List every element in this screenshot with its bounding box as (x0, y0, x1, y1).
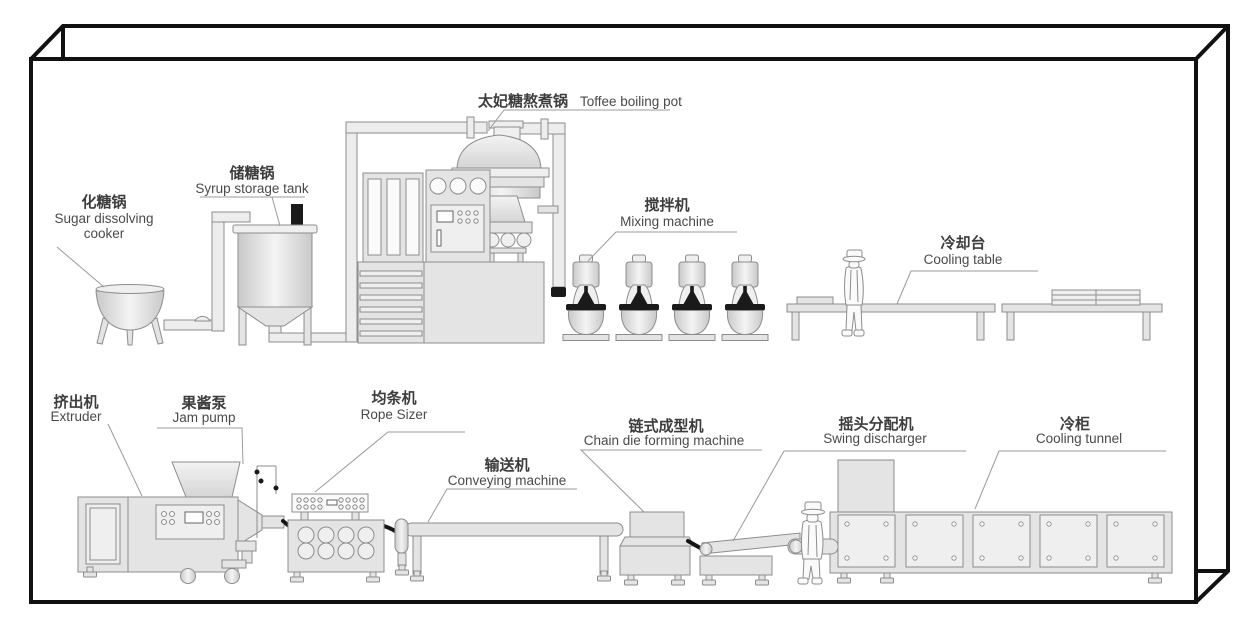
leader-cooling-table (897, 271, 1038, 304)
machine-foot (756, 575, 769, 585)
label-swing-discharger: 摇头分配机 Swing discharger (823, 415, 927, 446)
label-en: Conveying machine (448, 473, 567, 488)
label-conveyor: 输送机 Conveying machine (448, 456, 567, 488)
cooling-table-1 (787, 297, 995, 340)
label-en: Extruder (50, 409, 102, 424)
label-en: Rope Sizer (361, 407, 428, 422)
machine-foot (672, 575, 685, 585)
label-en: Mixing machine (620, 214, 714, 229)
label-zh: 化糖锅 (81, 193, 126, 211)
sugar-dissolving-cooker (96, 285, 164, 346)
mixing-machine-unit (722, 255, 768, 341)
label-jam-pump: 果酱泵 Jam pump (172, 394, 235, 425)
mixing-machine-unit (669, 255, 715, 341)
label-zh: 输送机 (484, 456, 529, 474)
tunnel-panel (1040, 515, 1097, 567)
label-toffee-pot: 太妃糖熬煮锅 Toffee boiling pot (478, 92, 682, 110)
tunnel-panel (838, 515, 895, 567)
label-en: Jam pump (172, 410, 235, 425)
label-en: cooker (84, 226, 125, 241)
label-chain-die: 链式成型机 Chain die forming machine (584, 417, 745, 448)
mixing-machine-unit (616, 255, 662, 341)
worker-figure-2 (798, 502, 825, 584)
rope-sizer (283, 494, 401, 582)
label-cooling-tunnel: 冷柜 Cooling tunnel (1036, 415, 1122, 446)
machine-foot (291, 572, 304, 582)
machine-foot (625, 575, 638, 585)
syrup-storage-tank (233, 204, 317, 345)
conveying-machine (395, 519, 623, 581)
tunnel-panel (906, 515, 963, 567)
label-en: Toffee boiling pot (580, 94, 682, 109)
label-en: Sugar dissolving (54, 211, 153, 226)
machine-foot (411, 571, 424, 581)
swing-discharger (700, 533, 800, 585)
machine-foot (703, 575, 716, 585)
machine-foot (1149, 573, 1162, 583)
label-en: Chain die forming machine (584, 433, 745, 448)
label-mixer: 搅拌机 Mixing machine (620, 196, 714, 229)
label-en: Syrup storage tank (195, 181, 309, 196)
tunnel-panel (1107, 515, 1164, 567)
label-syrup-tank: 储糖锅 Syrup storage tank (195, 164, 309, 196)
machine-foot (367, 572, 380, 582)
label-en: Cooling table (924, 252, 1003, 267)
leader-jam-pump (157, 428, 243, 464)
mixing-machine-unit (563, 255, 609, 341)
leader-mixer (588, 232, 737, 261)
label-en: Cooling tunnel (1036, 431, 1122, 446)
label-zh: 太妃糖熬煮锅 (478, 92, 568, 110)
extruder (78, 462, 284, 584)
leader-rope-sizer (315, 432, 465, 492)
leader-cooling-tunnel (975, 451, 1166, 509)
leader-sugar-cooker (57, 247, 104, 287)
cooling-tunnel (788, 460, 1172, 583)
toffee-boiling-pot-machine (358, 121, 558, 343)
leader-conveyor (428, 489, 577, 522)
worker-figure-1 (842, 250, 865, 336)
label-rope-sizer: 均条机 Rope Sizer (361, 389, 428, 422)
machine-foot (881, 573, 894, 583)
leader-extruder (108, 424, 142, 496)
label-zh: 均条机 (371, 389, 416, 407)
label-zh: 搅拌机 (644, 196, 689, 214)
leader-chain-die (581, 450, 762, 512)
mixing-machines (563, 255, 768, 341)
label-zh: 冷却台 (940, 234, 985, 252)
cooling-table-2 (1002, 290, 1162, 340)
label-sugar-cooker: 化糖锅 Sugar dissolving cooker (54, 193, 153, 241)
machine-foot (838, 573, 851, 583)
label-zh: 储糖锅 (229, 164, 274, 182)
label-cooling-table: 冷却台 Cooling table (924, 234, 1003, 267)
slab-stack (1052, 290, 1140, 305)
chain-die-forming-machine (620, 512, 706, 585)
production-line-diagram: 化糖锅 Sugar dissolving cooker 储糖锅 Syrup st… (0, 0, 1260, 628)
label-en: Swing discharger (823, 431, 927, 446)
machine-foot (598, 571, 611, 581)
machine-foot (396, 565, 409, 575)
label-extruder: 挤出机 Extruder (50, 393, 102, 424)
tunnel-panel (973, 515, 1030, 567)
